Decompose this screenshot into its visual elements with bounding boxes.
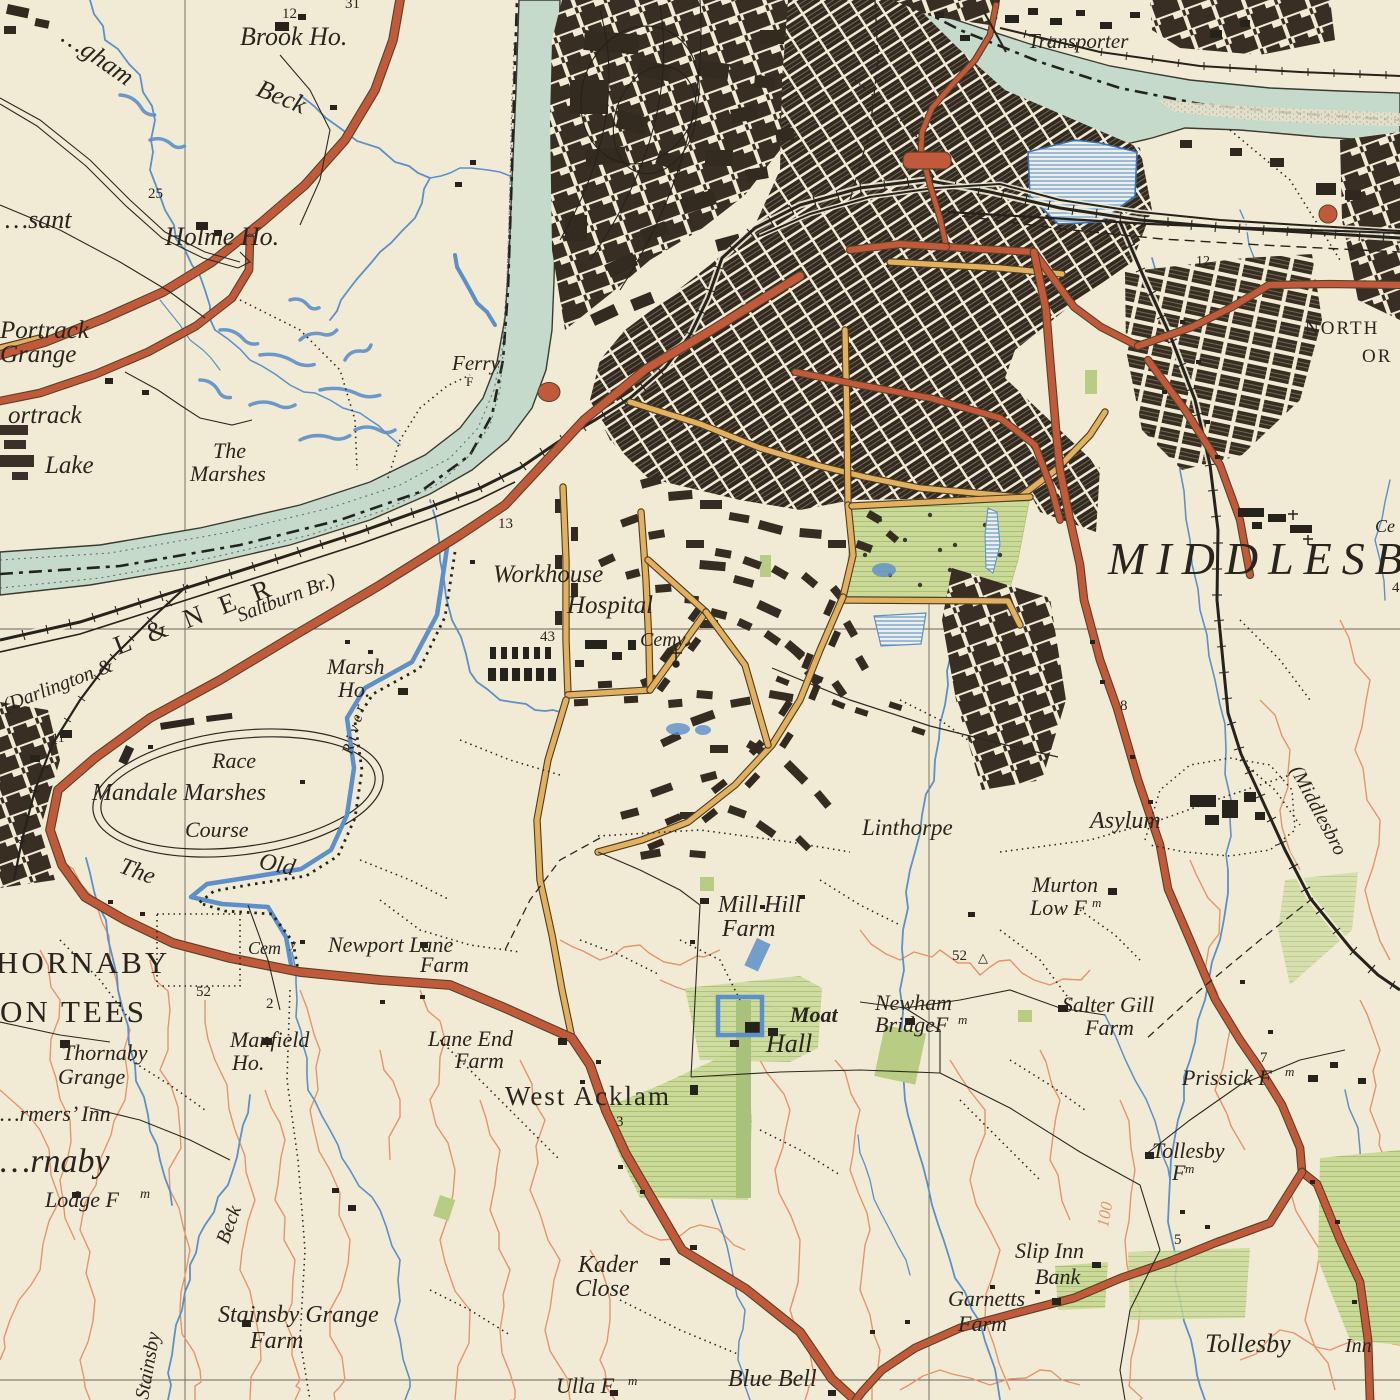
svg-text:Transporter: Transporter (1028, 29, 1129, 53)
svg-text:Ferry: Ferry (451, 351, 500, 375)
svg-text:BridgeF: BridgeF (875, 1012, 949, 1037)
svg-text:12: 12 (1196, 254, 1210, 269)
svg-text:Grange: Grange (0, 341, 76, 368)
svg-text:m: m (1285, 1064, 1294, 1079)
svg-text:Manfield: Manfield (229, 1027, 310, 1052)
svg-text:Cem: Cem (248, 938, 281, 958)
svg-text:Slip Inn: Slip Inn (1015, 1238, 1084, 1263)
svg-text:OR: OR (1362, 346, 1392, 367)
svg-text:△: △ (978, 950, 988, 965)
svg-text:Farm: Farm (1084, 1015, 1134, 1040)
svg-text:2: 2 (266, 996, 274, 1012)
svg-text:Ulla F: Ulla F (556, 1373, 615, 1398)
svg-text:Bank: Bank (1035, 1264, 1081, 1289)
svg-text:Ho.: Ho. (231, 1050, 264, 1075)
svg-text:ortrack: ortrack (8, 402, 83, 429)
svg-text:MIDDLESB: MIDDLESB (1107, 533, 1400, 584)
svg-text:Mandale Marshes: Mandale Marshes (91, 780, 266, 806)
svg-text:Portrack: Portrack (0, 317, 90, 344)
svg-text:Inn: Inn (1344, 1335, 1372, 1357)
svg-text:Ho.: Ho. (337, 677, 370, 702)
svg-text:Farm: Farm (454, 1048, 504, 1073)
svg-text:F: F (466, 374, 473, 389)
svg-text:Salter Gill: Salter Gill (1062, 992, 1154, 1017)
svg-text:Lake: Lake (44, 452, 94, 479)
svg-text:Hospital: Hospital (566, 592, 653, 619)
svg-text:43: 43 (540, 629, 555, 645)
svg-text:Murton: Murton (1031, 872, 1098, 897)
svg-text:m: m (1092, 895, 1101, 910)
svg-text:13: 13 (498, 516, 513, 532)
svg-text:7: 7 (1260, 1050, 1268, 1066)
svg-text:Workhouse: Workhouse (493, 561, 603, 588)
svg-text:Stainsby Grange: Stainsby Grange (218, 1302, 379, 1328)
svg-text:Kader: Kader (577, 1252, 639, 1278)
svg-text:Grange: Grange (58, 1064, 125, 1089)
svg-text:m: m (1185, 1161, 1194, 1176)
svg-text:Blue Bell: Blue Bell (728, 1366, 817, 1392)
svg-text:…rmers’ Inn: …rmers’ Inn (0, 1101, 111, 1126)
svg-text:Marsh: Marsh (326, 654, 384, 679)
svg-text:Low F: Low F (1029, 895, 1087, 920)
svg-text:F: F (1171, 1160, 1186, 1185)
svg-text:52: 52 (196, 984, 211, 1000)
svg-text:3: 3 (616, 1114, 624, 1130)
svg-text:m: m (628, 1373, 637, 1388)
svg-text:Linthorpe: Linthorpe (861, 815, 953, 840)
svg-text:y: y (288, 936, 296, 951)
svg-text:NORTH: NORTH (1305, 318, 1379, 339)
svg-text:Farm: Farm (957, 1311, 1007, 1336)
svg-text:Farm: Farm (419, 952, 469, 977)
svg-text:31: 31 (345, 0, 360, 12)
svg-text:4: 4 (1392, 580, 1400, 596)
svg-text:Mill Hill: Mill Hill (717, 892, 802, 918)
svg-text:m: m (140, 1187, 150, 1202)
svg-text:12: 12 (282, 6, 297, 22)
svg-text:Marshes: Marshes (189, 461, 266, 486)
svg-text:Tollesby: Tollesby (1205, 1329, 1291, 1358)
svg-text:…rnaby: …rnaby (0, 1143, 110, 1180)
svg-text:Lodge F: Lodge F (44, 1187, 120, 1212)
svg-text:Thornaby: Thornaby (62, 1040, 148, 1065)
svg-text:ON TEES: ON TEES (0, 994, 147, 1029)
svg-text:Hall: Hall (765, 1029, 812, 1058)
svg-text:The: The (213, 438, 246, 463)
svg-text:Ce: Ce (1375, 516, 1395, 536)
svg-text:…sant: …sant (5, 205, 72, 234)
svg-text:West Acklam: West Acklam (505, 1081, 671, 1111)
svg-text:Farm: Farm (721, 916, 775, 942)
svg-text:11: 11 (52, 730, 65, 745)
svg-text:Asylum: Asylum (1088, 808, 1161, 834)
svg-text:5: 5 (1174, 1232, 1182, 1248)
svg-text:Holme Ho.: Holme Ho. (164, 222, 279, 251)
svg-text:Garnetts: Garnetts (948, 1286, 1025, 1311)
svg-text:Farm: Farm (249, 1328, 303, 1354)
svg-text:Moat: Moat (789, 1002, 839, 1027)
svg-text:8: 8 (1120, 698, 1128, 714)
svg-text:Tollesby: Tollesby (1152, 1138, 1225, 1163)
svg-text:52: 52 (952, 948, 967, 964)
svg-text:Prissick F: Prissick F (1181, 1065, 1272, 1090)
svg-text:25: 25 (148, 186, 163, 202)
svg-text:THORNABY: THORNABY (0, 945, 170, 980)
svg-text:Brook Ho.: Brook Ho. (240, 22, 347, 51)
svg-text:Close: Close (575, 1276, 630, 1302)
svg-text:Race: Race (211, 748, 256, 773)
svg-text:Cemy.: Cemy. (640, 629, 689, 651)
svg-text:m: m (958, 1012, 967, 1027)
svg-text:Course: Course (185, 817, 249, 842)
